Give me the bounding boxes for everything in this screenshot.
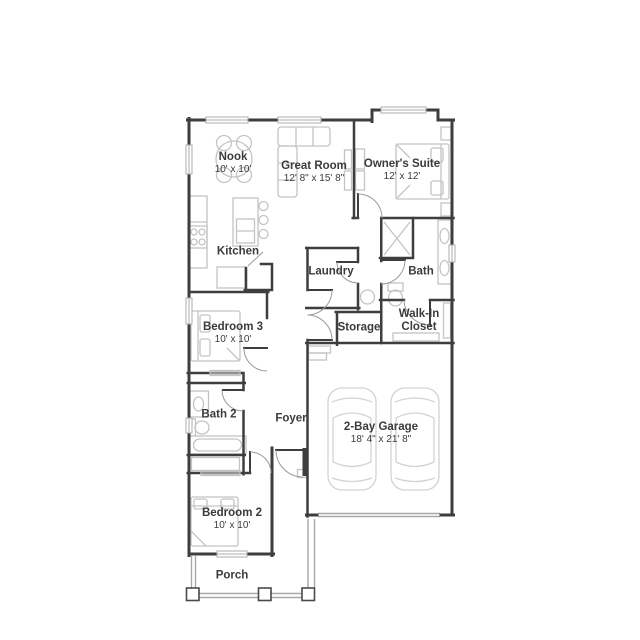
room-label-porch: Porch (216, 570, 249, 583)
floor-plan-drawing (0, 0, 640, 640)
room-label-storage: Storage (338, 322, 381, 335)
room-label-bath-2: Bath 2 (201, 409, 236, 422)
room-label-walk-in-closet: Walk-In Closet (399, 308, 439, 334)
room-label-foyer: Foyer (275, 413, 306, 426)
room-label-laundry: Laundry (308, 266, 353, 279)
kitchen-island-sink (233, 198, 268, 246)
bedroom2-closet-shelf (192, 458, 240, 471)
owners-bath-toilet (388, 283, 403, 306)
kitchen-cabinet (217, 267, 245, 288)
water-heater (361, 290, 375, 304)
kitchen-counter-stove (189, 196, 208, 268)
room-label-garage: 2-Bay Garage 18' 4" x 21' 8" (344, 421, 418, 445)
room-label-nook: Nook 10' x 10' (215, 151, 252, 175)
garage-door (318, 514, 440, 517)
porch-posts (187, 588, 315, 601)
floor-plan: Nook 10' x 10' Great Room 12' 8" x 15' 8… (0, 0, 640, 640)
room-label-bedroom-3: Bedroom 3 10' x 10' (203, 321, 263, 345)
room-label-kitchen: Kitchen (217, 246, 259, 259)
room-label-bedroom-2: Bedroom 2 10' x 10' (202, 507, 262, 531)
room-label-bath: Bath (408, 266, 434, 279)
garage-steps (309, 346, 331, 360)
room-label-great-room: Great Room 12' 8" x 15' 8" (281, 160, 347, 184)
entry-wall-stub (303, 448, 309, 476)
owners-bath-shower (384, 222, 410, 255)
room-label-owners-suite: Owner's Suite 12' x 12' (364, 158, 440, 182)
bath2-tub (190, 436, 246, 454)
